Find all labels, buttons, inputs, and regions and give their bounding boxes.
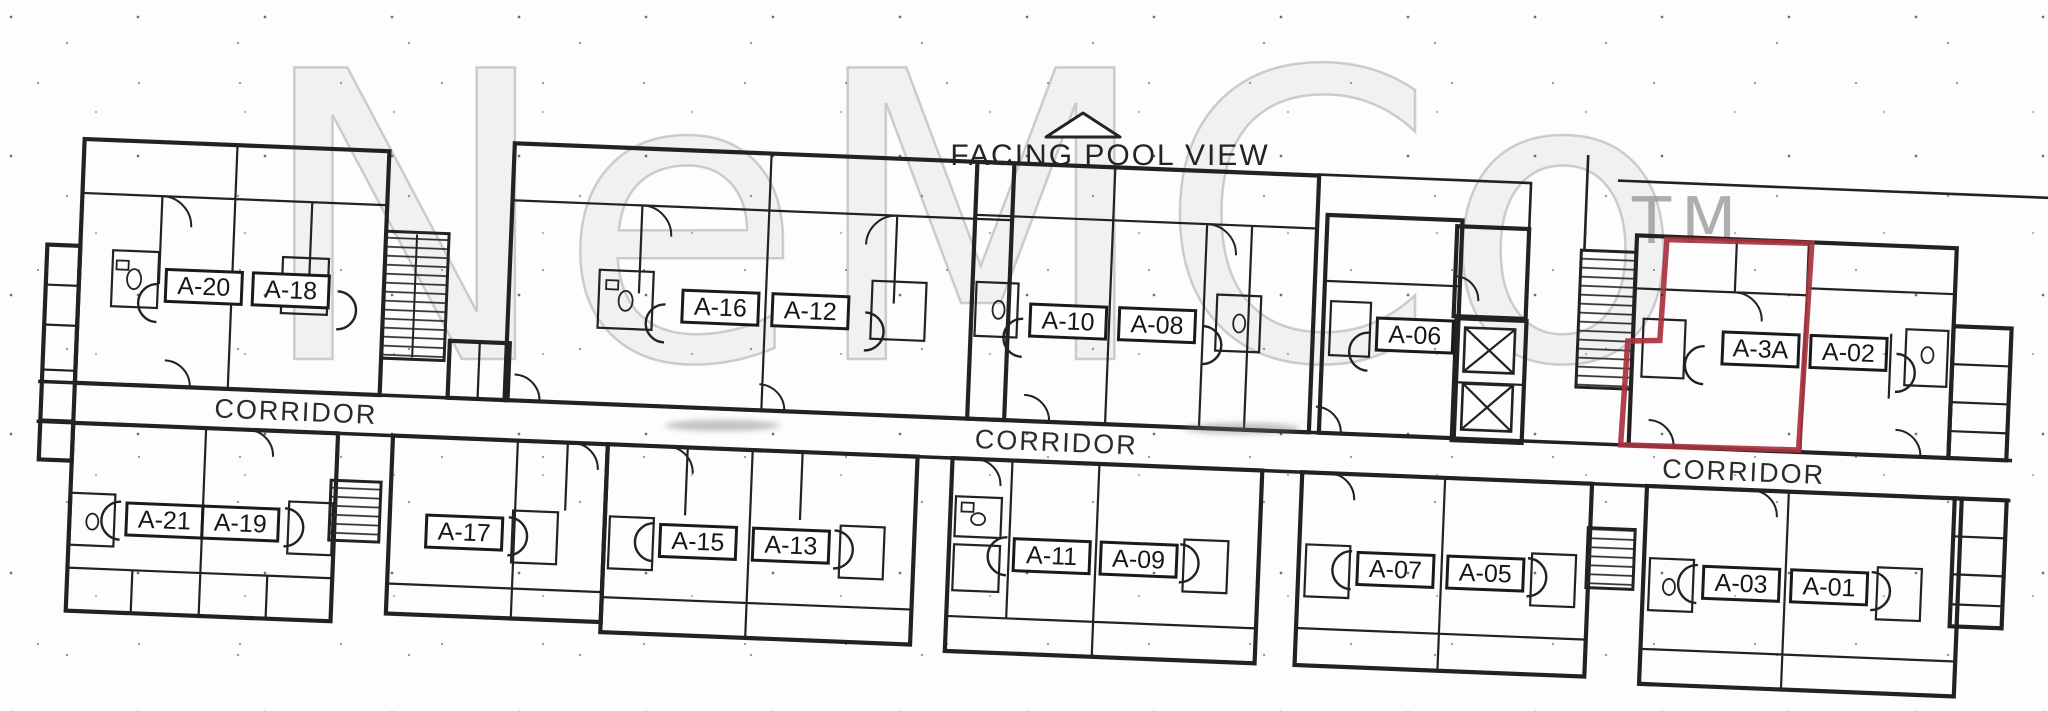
unit-label-a-18[interactable]: A-18 <box>252 273 329 308</box>
scan-smudge <box>665 420 780 431</box>
unit-label-a-20[interactable]: A-20 <box>165 269 242 304</box>
unit-label-a-07[interactable]: A-07 <box>1357 552 1434 587</box>
svg-text:A-13: A-13 <box>764 531 818 561</box>
unit-label-a-10[interactable]: A-10 <box>1030 304 1107 339</box>
boundary-walls <box>1314 146 2048 342</box>
svg-text:A-11: A-11 <box>1026 541 1078 571</box>
unit-label-a-16[interactable]: A-16 <box>682 290 759 325</box>
svg-text:A-20: A-20 <box>177 272 231 302</box>
svg-text:A-21: A-21 <box>137 505 191 535</box>
svg-text:A-01: A-01 <box>1802 572 1856 602</box>
service-shaft <box>1586 528 1635 590</box>
unit-label-a-02[interactable]: A-02 <box>1810 335 1887 370</box>
svg-text:A-02: A-02 <box>1822 338 1876 368</box>
svg-text:A-10: A-10 <box>1041 307 1095 337</box>
scanned-floor-plan-page: { "orientation": { "label": "FACING POOL… <box>0 0 2048 711</box>
svg-text:A-18: A-18 <box>264 275 318 305</box>
unit-label-a-19[interactable]: A-19 <box>202 506 279 541</box>
corridor-label-right: CORRIDOR <box>1662 454 1826 491</box>
staircase-icon <box>329 480 381 542</box>
unit-label-a-01[interactable]: A-01 <box>1790 570 1867 605</box>
unit-label-a-09[interactable]: A-09 <box>1100 542 1177 577</box>
svg-text:A-17: A-17 <box>437 517 491 547</box>
svg-text:A-19: A-19 <box>213 509 267 539</box>
unit-label-a-05[interactable]: A-05 <box>1447 556 1524 591</box>
right-annex-upper <box>1948 326 2011 460</box>
svg-text:A-3A: A-3A <box>1732 334 1789 364</box>
svg-text:A-15: A-15 <box>671 527 725 557</box>
unit-label-a-11[interactable]: A-11 <box>1013 539 1090 574</box>
svg-text:A-05: A-05 <box>1458 559 1512 589</box>
svg-text:A-06: A-06 <box>1388 320 1442 350</box>
building-band: CORRIDOR CORRIDOR CORRIDOR A-20 A-18 A-1… <box>30 95 2048 700</box>
svg-text:A-16: A-16 <box>693 293 747 323</box>
unit-label-a-03[interactable]: A-03 <box>1703 566 1780 601</box>
triangle-up-icon <box>1042 110 1124 147</box>
block-a16-a12 <box>505 143 1015 420</box>
elevators <box>1461 328 1515 432</box>
room-above-elevators <box>1454 226 1530 319</box>
floor-plan-drawing: CORRIDOR CORRIDOR CORRIDOR A-20 A-18 A-1… <box>0 0 2048 711</box>
corridor-label-left: CORRIDOR <box>214 393 378 430</box>
svg-text:A-12: A-12 <box>783 296 837 326</box>
unit-label-a-13[interactable]: A-13 <box>752 528 829 563</box>
unit-label-a-3a[interactable]: A-3A <box>1722 332 1799 367</box>
svg-text:A-07: A-07 <box>1368 555 1422 585</box>
outer-walls <box>30 95 2048 700</box>
unit-label-a-08[interactable]: A-08 <box>1118 308 1195 343</box>
svg-text:A-08: A-08 <box>1130 310 1184 340</box>
unit-label-a-06[interactable]: A-06 <box>1376 318 1453 353</box>
unit-label-a-15[interactable]: A-15 <box>659 524 736 559</box>
unit-label-a-21[interactable]: A-21 <box>126 503 203 538</box>
svg-text:A-03: A-03 <box>1714 569 1768 599</box>
block-a10-a08 <box>967 162 1319 433</box>
scan-smudge <box>1185 423 1300 434</box>
unit-label-a-17[interactable]: A-17 <box>426 515 503 550</box>
unit-label-a-12[interactable]: A-12 <box>772 294 849 329</box>
corridor-label-middle: CORRIDOR <box>974 424 1138 461</box>
svg-text:A-09: A-09 <box>1112 545 1166 575</box>
